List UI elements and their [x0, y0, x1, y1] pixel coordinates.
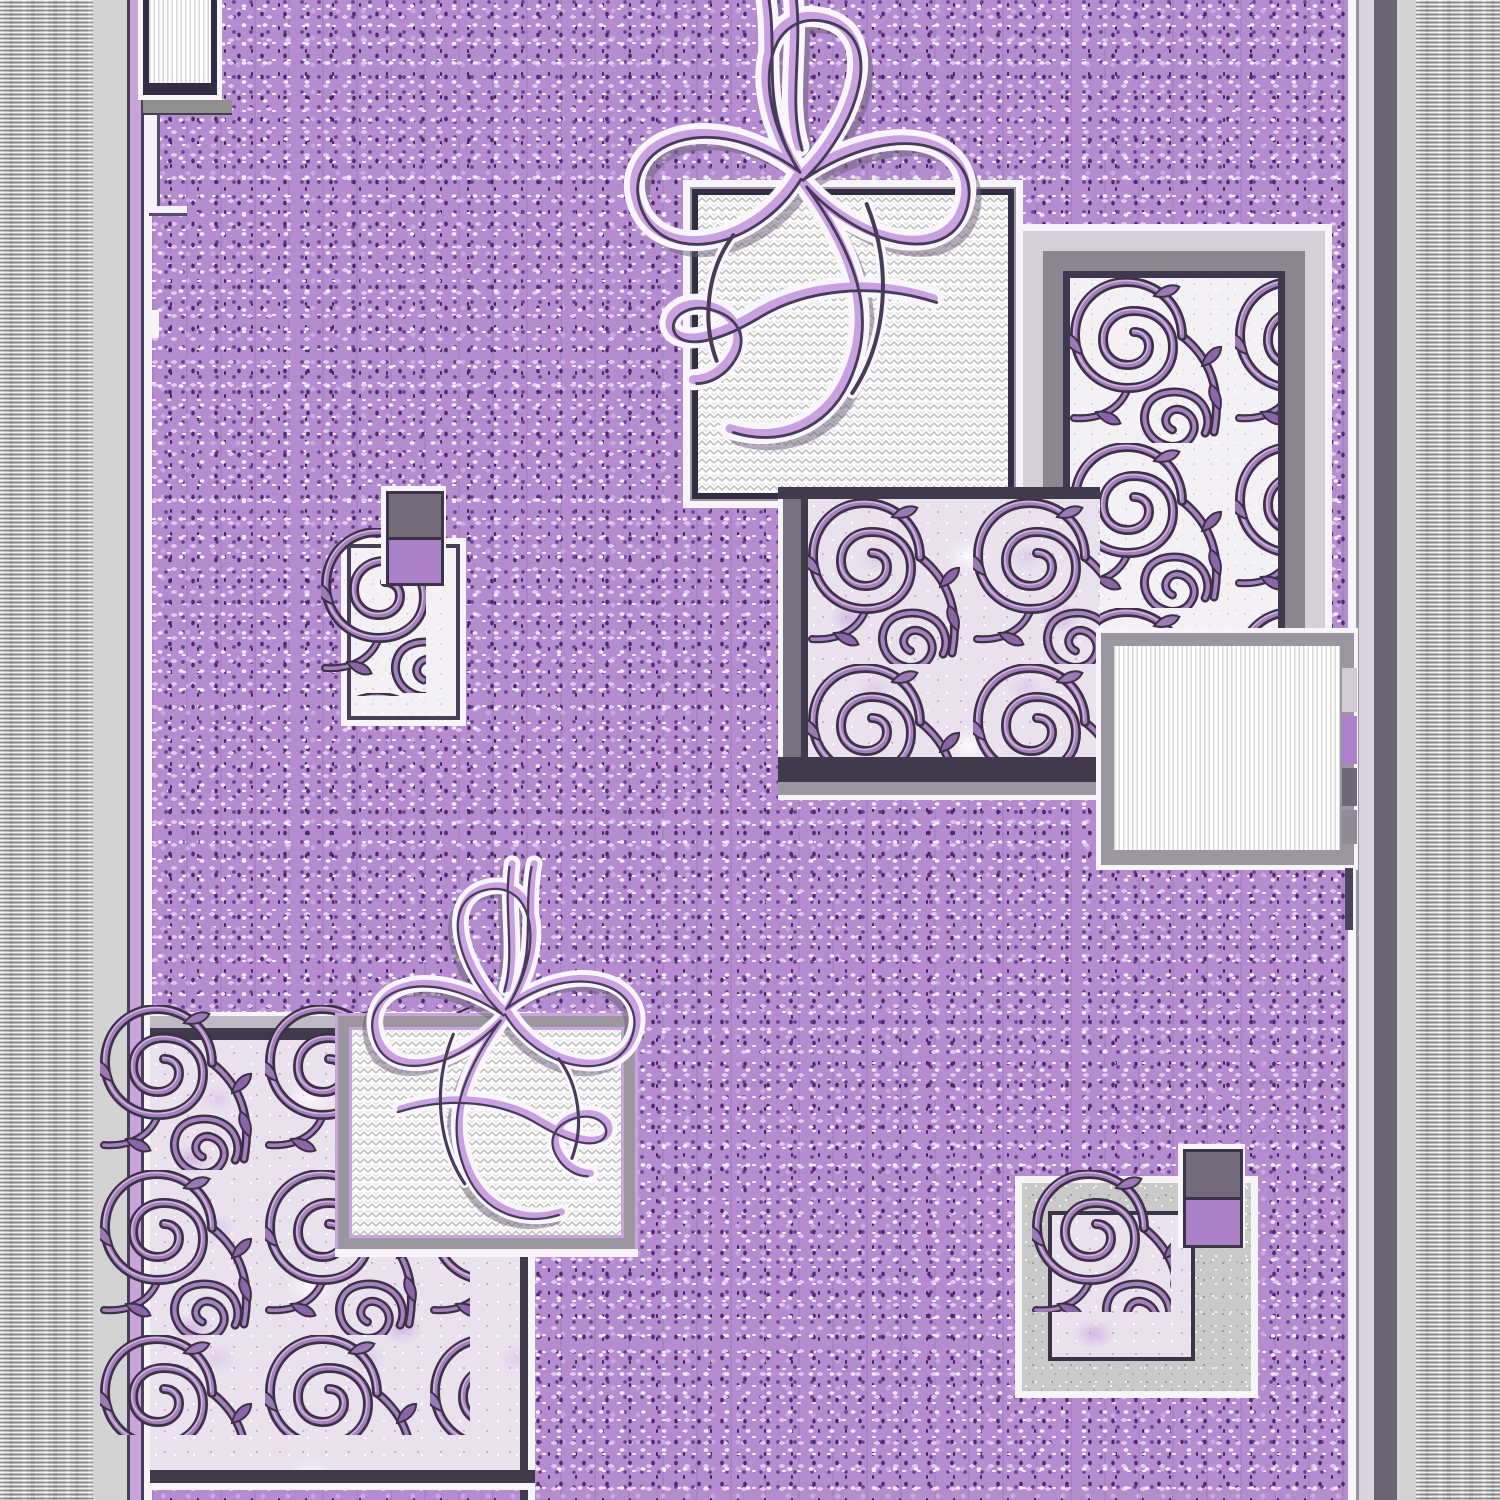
striped-panel-tab-dark [1342, 768, 1357, 806]
accent-squares-left [381, 486, 446, 584]
striped-panel-right-stripes [1114, 646, 1340, 850]
top-left-step-cap [149, 206, 187, 216]
scroll-square-middle-vines [808, 499, 1100, 757]
left-border-texture [0, 0, 93, 1500]
right-border-gray-band [1397, 0, 1416, 1500]
bottom-ribbon-flourish [330, 862, 682, 1284]
right-border-light-band [1359, 0, 1374, 1500]
top-left-step-line [149, 115, 160, 212]
scroll-square-bottom-right-vines [1052, 1215, 1191, 1357]
scroll-square-middle-dark-edge [801, 487, 808, 800]
striped-panel-tab-gray [1342, 810, 1357, 844]
striped-panel-tab-slate [1345, 868, 1353, 930]
scroll-square-middle-gray-edge [783, 487, 801, 800]
scroll-square-middle-bottom-gray [778, 782, 1100, 795]
scroll-square-middle-bottom-white [778, 795, 1100, 800]
right-border-texture [1416, 0, 1500, 1500]
accent-square-right-purple [1183, 1197, 1243, 1248]
bottom-scroll-square-bottom-dark [150, 1470, 535, 1483]
scroll-square-middle [778, 487, 1100, 800]
top-left-step-dash [151, 310, 159, 338]
accent-square-left-gray [386, 491, 444, 540]
top-left-panel-stripes [149, 0, 211, 83]
bottom-scroll-square-bottom-white [150, 1483, 535, 1490]
scroll-square-middle-bottom-dark [778, 757, 1100, 782]
carpet-pattern-photo [0, 0, 1500, 1500]
right-border-slate-band [1374, 0, 1397, 1500]
striped-panel-tab-light [1342, 668, 1357, 712]
accent-square-right-gray [1183, 1149, 1243, 1200]
striped-panel-right [1096, 628, 1358, 870]
scroll-square-bottom-right-ground [1052, 1215, 1191, 1357]
scroll-square-middle-ground [808, 499, 1100, 757]
top-left-panel-shadow-band [143, 100, 232, 115]
accent-square-left-purple [386, 537, 444, 586]
striped-panel-tab-purple [1342, 716, 1357, 764]
top-ribbon-flourish [600, 0, 1000, 520]
accent-squares-right [1178, 1144, 1245, 1248]
